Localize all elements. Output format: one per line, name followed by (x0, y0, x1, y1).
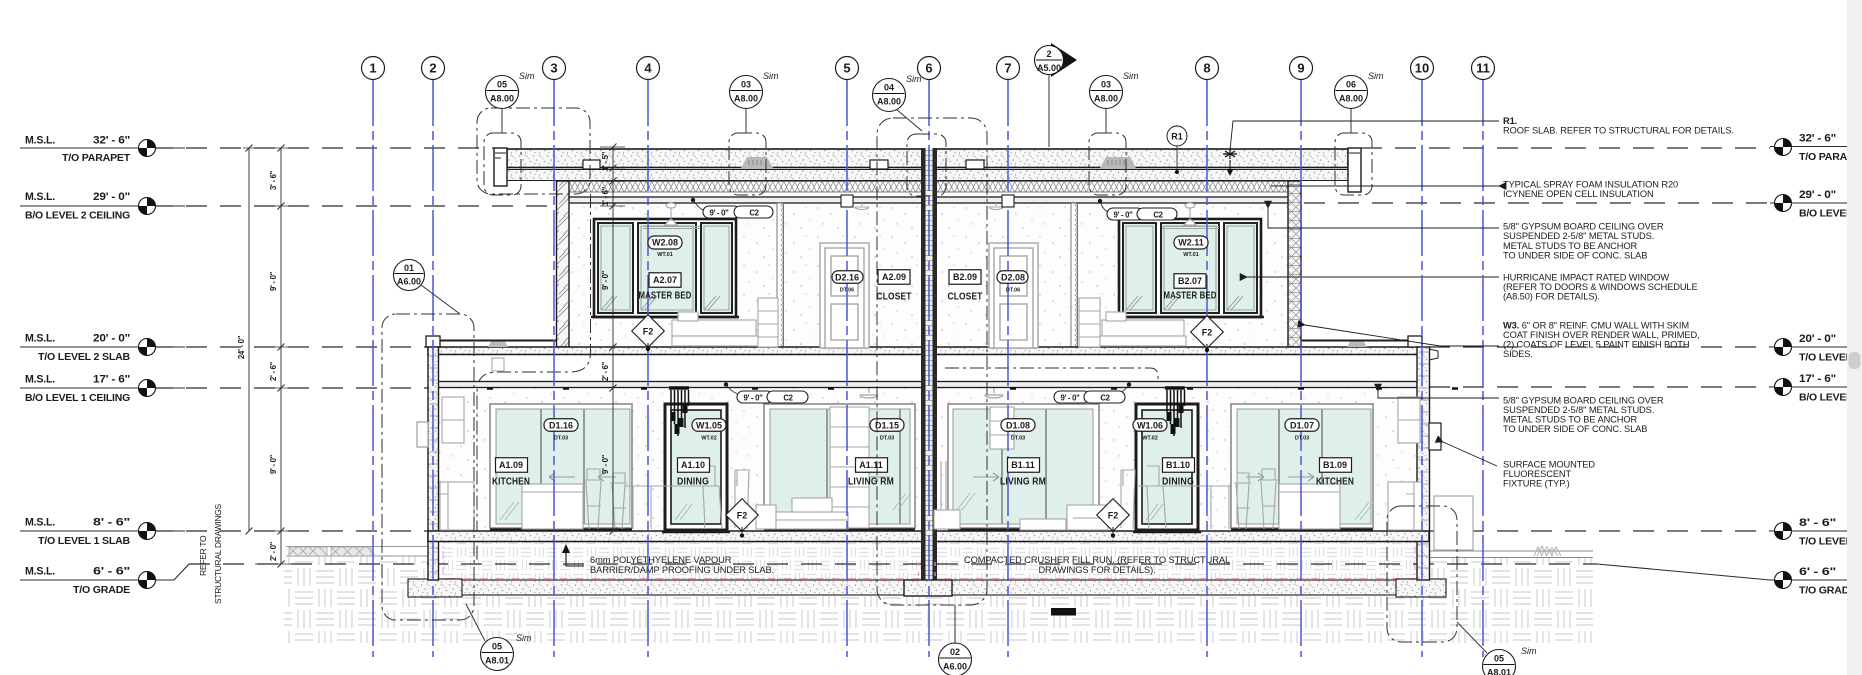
svg-text:C2: C2 (749, 209, 759, 218)
svg-text:(A8.50) FOR DETAILS).: (A8.50) FOR DETAILS). (1503, 292, 1600, 302)
svg-text:9' - 0": 9' - 0" (1060, 394, 1080, 403)
svg-text:R1: R1 (1171, 132, 1183, 142)
svg-text:M.S.L.: M.S.L. (25, 333, 55, 345)
svg-text:5: 5 (843, 61, 850, 76)
svg-text:DT.03: DT.03 (880, 436, 894, 442)
svg-text:02: 02 (950, 647, 960, 657)
svg-text:11: 11 (1476, 61, 1490, 76)
svg-text:3' - 6": 3' - 6" (269, 170, 278, 190)
svg-text:10: 10 (1415, 61, 1429, 76)
svg-text:1' - 5": 1' - 5" (601, 151, 610, 171)
svg-text:32' - 6": 32' - 6" (1799, 133, 1836, 145)
svg-text:05: 05 (1494, 654, 1504, 664)
svg-text:9' - 0": 9' - 0" (601, 270, 610, 290)
svg-text:6' - 6": 6' - 6" (93, 566, 130, 578)
svg-text:29' - 0": 29' - 0" (1799, 189, 1836, 201)
svg-text:MASTER BED: MASTER BED (1164, 291, 1217, 302)
svg-text:D1.15: D1.15 (875, 421, 899, 431)
svg-text:5/8" GYPSUM BOARD CEILING OVER: 5/8" GYPSUM BOARD CEILING OVER (1503, 395, 1664, 405)
svg-text:D1.16: D1.16 (549, 421, 573, 431)
svg-text:FIXTURE (TYP.): FIXTURE (TYP.) (1503, 479, 1570, 489)
svg-text:Sim: Sim (519, 71, 535, 81)
svg-text:17' - 6": 17' - 6" (93, 374, 130, 386)
svg-text:SUSPENDED 2-5/8" METAL STUDS.: SUSPENDED 2-5/8" METAL STUDS. (1503, 231, 1654, 241)
svg-text:20' - 0": 20' - 0" (1799, 333, 1836, 345)
svg-text:M.S.L.: M.S.L. (25, 191, 55, 203)
svg-text:M.S.L.: M.S.L. (25, 517, 55, 529)
svg-text:TO UNDER SIDE OF CONC. SLAB: TO UNDER SIDE OF CONC. SLAB (1503, 250, 1647, 260)
svg-text:SURFACE MOUNTED: SURFACE MOUNTED (1503, 459, 1595, 469)
svg-text:8' - 6": 8' - 6" (1799, 517, 1836, 529)
svg-text:M.S.L.: M.S.L. (25, 374, 55, 386)
svg-text:F2: F2 (1202, 328, 1213, 338)
svg-text:Sim: Sim (763, 71, 779, 81)
svg-text:03: 03 (741, 80, 751, 90)
svg-text:DT.03: DT.03 (1011, 436, 1025, 442)
svg-text:B/O LEVEL 2 CEILING: B/O LEVEL 2 CEILING (25, 210, 130, 222)
svg-text:ICYNENE OPEN CELL INSULATION: ICYNENE OPEN CELL INSULATION (1503, 189, 1654, 199)
svg-text:SUSPENDED 2-5/8" METAL STUDS.: SUSPENDED 2-5/8" METAL STUDS. (1503, 405, 1654, 415)
svg-text:24' - 0": 24' - 0" (237, 335, 246, 359)
svg-text:A8.00: A8.00 (877, 97, 901, 107)
svg-text:9: 9 (1297, 61, 1304, 76)
svg-text:W2.11: W2.11 (1178, 238, 1204, 248)
svg-text:T/O PARAPET: T/O PARAPET (62, 152, 131, 164)
svg-text:TO UNDER SIDE OF CONC. SLAB: TO UNDER SIDE OF CONC. SLAB (1503, 424, 1647, 434)
svg-text:MASTER BED: MASTER BED (639, 291, 692, 302)
svg-text:FLUORESCENT: FLUORESCENT (1503, 469, 1572, 479)
svg-text:W2.08: W2.08 (652, 238, 678, 248)
svg-text:6: 6 (925, 61, 932, 76)
svg-text:3: 3 (550, 61, 557, 76)
svg-text:A2.07: A2.07 (653, 275, 677, 285)
svg-text:W3. 6" OR 8" REINF. CMU WALL W: W3. 6" OR 8" REINF. CMU WALL WITH SKIM (1503, 320, 1689, 330)
svg-text:WT.01: WT.01 (657, 252, 673, 258)
svg-text:LIVING RM: LIVING RM (1000, 477, 1046, 488)
svg-text:01: 01 (404, 263, 414, 273)
svg-text:A6.00: A6.00 (397, 277, 421, 287)
svg-text:7: 7 (1004, 61, 1011, 76)
svg-text:M.S.L.: M.S.L. (25, 135, 55, 147)
svg-text:B1.10: B1.10 (1166, 460, 1190, 470)
svg-text:F2: F2 (1108, 511, 1119, 521)
svg-text:1: 1 (369, 61, 376, 76)
svg-text:(REFER TO DOORS & WINDOWS SCHE: (REFER TO DOORS & WINDOWS SCHEDULE (1503, 282, 1698, 292)
svg-text:A6.00: A6.00 (943, 662, 967, 672)
svg-text:METAL STUDS TO BE ANCHOR: METAL STUDS TO BE ANCHOR (1503, 241, 1638, 251)
svg-text:T/O LEVEL 1 SLAB: T/O LEVEL 1 SLAB (38, 535, 131, 547)
svg-text:DT.03: DT.03 (1295, 436, 1309, 442)
svg-text:B/O LEVEL 1 CEILING: B/O LEVEL 1 CEILING (25, 392, 130, 404)
svg-text:06: 06 (1346, 80, 1356, 90)
svg-text:DT.03: DT.03 (554, 436, 568, 442)
svg-text:LIVING RM: LIVING RM (848, 477, 894, 488)
svg-text:DRAWINGS FOR DETAILS).: DRAWINGS FOR DETAILS). (1038, 565, 1155, 575)
svg-text:A8.01: A8.01 (485, 656, 509, 666)
svg-text:Sim: Sim (1368, 71, 1384, 81)
svg-text:W1.06: W1.06 (1137, 421, 1163, 431)
svg-text:A8.00: A8.00 (734, 94, 758, 104)
svg-text:A2.09: A2.09 (882, 272, 906, 282)
svg-text:B1.11: B1.11 (1011, 460, 1035, 470)
svg-text:T/O LEVEL 2 SLAB: T/O LEVEL 2 SLAB (38, 351, 131, 363)
svg-text:04: 04 (884, 83, 894, 93)
svg-text:CLOSET: CLOSET (948, 292, 983, 303)
svg-text:29' - 0": 29' - 0" (93, 191, 130, 203)
svg-text:C2: C2 (783, 394, 793, 403)
svg-text:DT.06: DT.06 (840, 288, 854, 294)
svg-text:B2.09: B2.09 (953, 272, 977, 282)
svg-text:C2: C2 (1100, 394, 1110, 403)
svg-text:C2: C2 (1153, 211, 1163, 220)
svg-text:A8.00: A8.00 (1094, 94, 1118, 104)
svg-text:ROOF SLAB. REFER TO STRUCTURAL: ROOF SLAB. REFER TO STRUCTURAL FOR DETAI… (1503, 126, 1734, 136)
svg-text:A1.09: A1.09 (499, 460, 523, 470)
svg-text:REFER TO: REFER TO (198, 535, 208, 576)
svg-text:6' - 6": 6' - 6" (1799, 566, 1836, 578)
svg-text:2: 2 (429, 61, 436, 76)
svg-text:B2.07: B2.07 (1178, 276, 1202, 286)
svg-text:WT.02: WT.02 (1142, 436, 1158, 442)
svg-text:COMPACTED CRUSHER FILL RUN. (R: COMPACTED CRUSHER FILL RUN. (REFER TO ST… (964, 555, 1230, 565)
svg-text:SIDES.: SIDES. (1503, 349, 1533, 359)
svg-text:Sim: Sim (516, 633, 532, 643)
svg-text:32' - 6": 32' - 6" (93, 135, 130, 147)
svg-text:TYPICAL SPRAY FOAM INSULATION: TYPICAL SPRAY FOAM INSULATION R20 (1503, 180, 1678, 190)
svg-text:F2: F2 (737, 511, 748, 521)
svg-text:WT.02: WT.02 (701, 436, 717, 442)
svg-text:W1.05: W1.05 (696, 421, 722, 431)
svg-text:D2.08: D2.08 (1001, 273, 1025, 283)
svg-text:9' - 0": 9' - 0" (743, 394, 763, 403)
svg-text:8: 8 (1203, 61, 1210, 76)
svg-text:05: 05 (497, 80, 507, 90)
svg-text:A8.01: A8.01 (1487, 668, 1511, 675)
svg-text:A8.00: A8.00 (1339, 94, 1363, 104)
svg-text:METAL STUDS TO BE ANCHOR: METAL STUDS TO BE ANCHOR (1503, 415, 1638, 425)
svg-text:DINING: DINING (1162, 477, 1194, 488)
svg-text:9' - 0": 9' - 0" (601, 454, 610, 474)
svg-text:A1.10: A1.10 (681, 460, 705, 470)
svg-text:17' - 6": 17' - 6" (1799, 373, 1836, 385)
svg-text:9' - 0": 9' - 0" (269, 454, 278, 474)
svg-text:DT.06: DT.06 (1006, 288, 1020, 294)
svg-text:4: 4 (644, 61, 652, 76)
svg-text:D2.16: D2.16 (835, 273, 859, 283)
svg-text:1' - 6": 1' - 6" (601, 186, 610, 206)
svg-text:9' - 0": 9' - 0" (709, 209, 729, 218)
svg-text:9' - 0": 9' - 0" (1113, 211, 1133, 220)
svg-text:6mm POLYETHYELENE VAPOUR: 6mm POLYETHYELENE VAPOUR (590, 555, 732, 565)
svg-text:COAT FINISH OVER RENDER WALL,: COAT FINISH OVER RENDER WALL, PRIMED, (1503, 330, 1700, 340)
svg-text:05: 05 (492, 642, 502, 652)
svg-text:A5.00: A5.00 (1037, 63, 1061, 73)
svg-text:A8.00: A8.00 (490, 94, 514, 104)
svg-text:Sim: Sim (1123, 71, 1139, 81)
svg-text:WT.01: WT.01 (1183, 252, 1199, 258)
svg-text:2: 2 (1046, 49, 1051, 59)
svg-text:D1.07: D1.07 (1290, 421, 1314, 431)
svg-text:M.S.L.: M.S.L. (25, 566, 55, 578)
svg-text:03: 03 (1101, 80, 1111, 90)
svg-text:5/8" GYPSUM BOARD CEILING OVER: 5/8" GYPSUM BOARD CEILING OVER (1503, 222, 1664, 232)
svg-text:9' - 0": 9' - 0" (269, 271, 278, 291)
svg-text:F2: F2 (643, 327, 654, 337)
svg-text:R1.: R1. (1503, 116, 1517, 126)
svg-text:2' - 0": 2' - 0" (269, 541, 278, 561)
svg-text:Sim: Sim (906, 74, 922, 84)
svg-text:A1.11: A1.11 (859, 460, 883, 470)
svg-text:STRUCTURAL DRAWINGS: STRUCTURAL DRAWINGS (213, 503, 223, 604)
svg-text:(2) COATS OF LEVEL 5 PAINT FIN: (2) COATS OF LEVEL 5 PAINT FINISH BOTH (1503, 340, 1689, 350)
svg-text:2' - 6": 2' - 6" (269, 361, 278, 381)
svg-text:T/O GRADE: T/O GRADE (73, 584, 130, 596)
svg-text:2' - 6": 2' - 6" (601, 361, 610, 381)
svg-text:8' - 6": 8' - 6" (93, 517, 130, 529)
svg-text:D1.08: D1.08 (1006, 421, 1030, 431)
svg-text:DINING: DINING (677, 477, 709, 488)
svg-text:B1.09: B1.09 (1323, 460, 1347, 470)
svg-text:20' - 0": 20' - 0" (93, 333, 130, 345)
svg-text:Sim: Sim (1521, 646, 1537, 656)
svg-text:CLOSET: CLOSET (877, 292, 912, 303)
svg-text:BARRIER/DAMP PROOFING UNDER SL: BARRIER/DAMP PROOFING UNDER SLAB. (590, 565, 774, 575)
svg-text:HURRICANE IMPACT RATED WINDOW: HURRICANE IMPACT RATED WINDOW (1503, 272, 1669, 282)
svg-text:KITCHEN: KITCHEN (1316, 477, 1354, 488)
svg-text:KITCHEN: KITCHEN (492, 477, 530, 488)
